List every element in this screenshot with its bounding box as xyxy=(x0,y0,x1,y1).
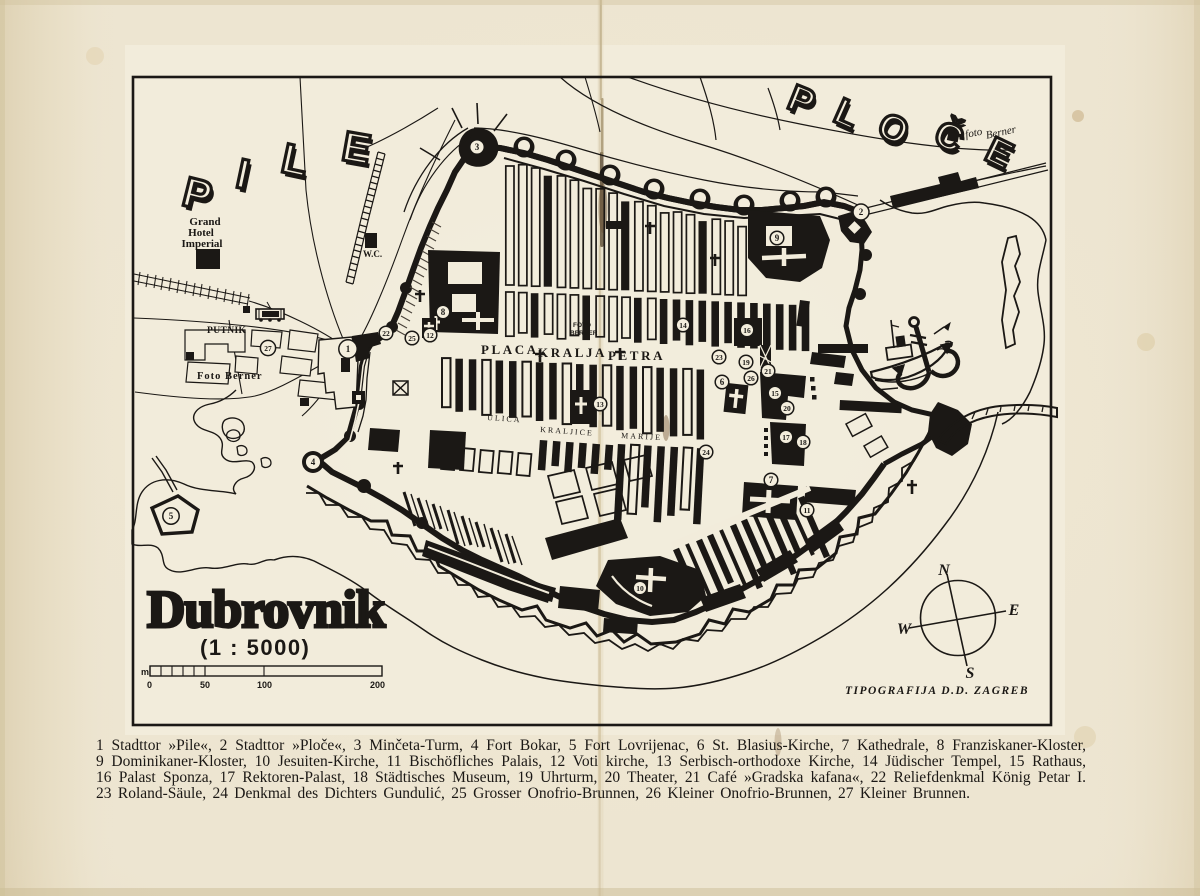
svg-text:W.C.: W.C. xyxy=(363,249,382,259)
svg-text:15: 15 xyxy=(771,389,779,398)
svg-text:N: N xyxy=(937,562,951,579)
svg-text:S: S xyxy=(966,665,975,682)
svg-text:Foto Berner: Foto Berner xyxy=(197,371,263,382)
svg-text:17: 17 xyxy=(782,433,790,442)
svg-text:8: 8 xyxy=(441,307,446,317)
svg-text:20: 20 xyxy=(783,404,791,413)
svg-text:23: 23 xyxy=(715,353,723,362)
svg-text:3: 3 xyxy=(475,142,480,152)
svg-text:10: 10 xyxy=(636,584,644,593)
svg-text:W: W xyxy=(897,621,913,638)
svg-text:1: 1 xyxy=(346,344,351,354)
svg-text:21: 21 xyxy=(764,367,772,376)
svg-text:11: 11 xyxy=(803,506,810,515)
svg-text:50: 50 xyxy=(200,680,210,690)
svg-text:27: 27 xyxy=(264,344,272,353)
svg-text:0: 0 xyxy=(147,680,152,690)
svg-text:13: 13 xyxy=(596,400,604,409)
svg-text:Imperial: Imperial xyxy=(182,238,223,250)
svg-text:9: 9 xyxy=(775,233,780,243)
svg-text:18: 18 xyxy=(799,438,807,447)
svg-text:14: 14 xyxy=(679,321,687,330)
svg-text:2: 2 xyxy=(859,207,864,217)
svg-text:E: E xyxy=(1008,602,1020,619)
svg-text:22: 22 xyxy=(382,329,390,338)
svg-text:4: 4 xyxy=(311,457,316,467)
svg-text:100: 100 xyxy=(257,680,272,690)
svg-text:7: 7 xyxy=(769,475,774,485)
svg-text:25: 25 xyxy=(408,334,416,343)
svg-text:16: 16 xyxy=(743,326,751,335)
svg-text:PETRA: PETRA xyxy=(608,348,665,363)
svg-text:26: 26 xyxy=(747,374,755,383)
svg-text:(1 : 5000): (1 : 5000) xyxy=(200,635,310,660)
svg-text:PUTNIK: PUTNIK xyxy=(207,326,247,336)
svg-text:5: 5 xyxy=(169,511,174,521)
svg-text:6: 6 xyxy=(720,377,725,387)
svg-text:12: 12 xyxy=(426,331,434,340)
svg-text:FOTO: FOTO xyxy=(573,322,591,329)
svg-text:24: 24 xyxy=(702,448,710,457)
svg-text:KRALJA: KRALJA xyxy=(538,345,607,360)
svg-text:m: m xyxy=(141,667,149,677)
svg-text:19: 19 xyxy=(742,358,750,367)
svg-text:PLACA: PLACA xyxy=(481,342,539,357)
svg-text:200: 200 xyxy=(370,680,385,690)
svg-text:Dubrovnik: Dubrovnik xyxy=(147,581,386,639)
svg-text:BERNER: BERNER xyxy=(570,330,598,337)
svg-text:TIPOGRAFIJA D.D. ZAGREB: TIPOGRAFIJA D.D. ZAGREB xyxy=(845,685,1029,697)
